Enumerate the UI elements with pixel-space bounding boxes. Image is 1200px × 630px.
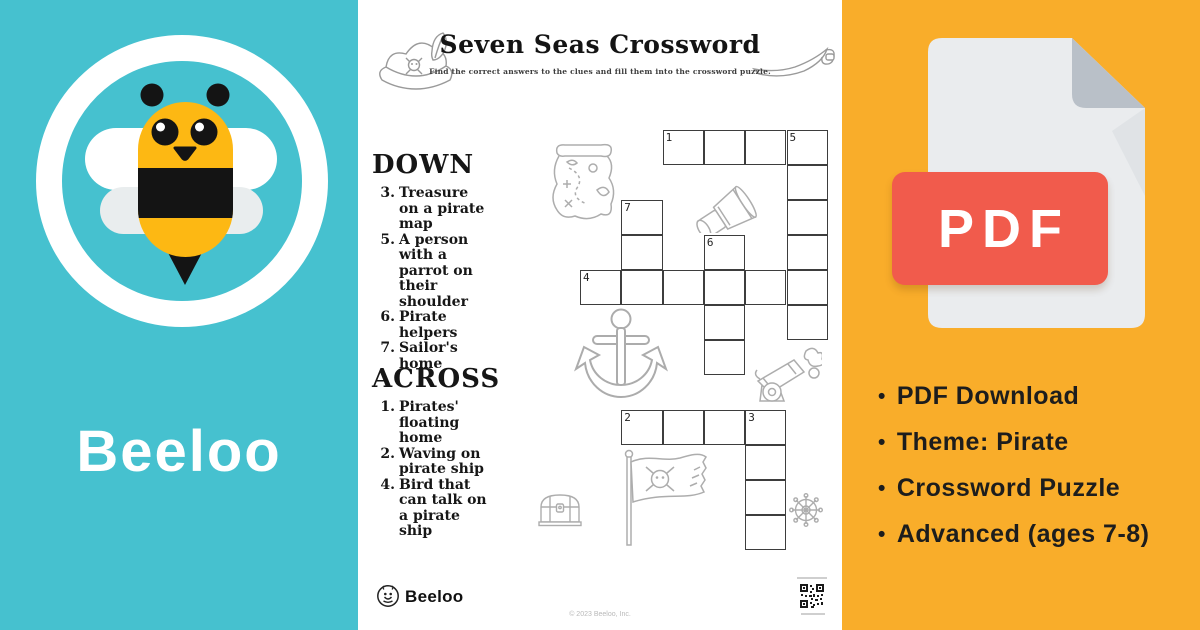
crossword-cell bbox=[745, 270, 786, 305]
feature-item: Crossword Puzzle bbox=[878, 475, 1150, 503]
crossword-cell: 1 bbox=[663, 130, 704, 165]
crossword-cell: 4 bbox=[580, 270, 621, 305]
footer-brand-name: Beeloo bbox=[405, 587, 463, 607]
crossword-cell bbox=[787, 305, 828, 340]
clue-item: 3.Treasure on a pirate map bbox=[399, 186, 511, 233]
brand-panel: Beeloo bbox=[0, 0, 358, 630]
crossword-cell bbox=[745, 130, 786, 165]
worksheet-preview: Seven Seas Crossword Find the correct an… bbox=[358, 0, 842, 630]
treasure-map-icon bbox=[545, 140, 620, 225]
crossword-cell bbox=[663, 410, 704, 445]
crossword-cell bbox=[745, 515, 786, 550]
crossword-cell-number: 5 bbox=[790, 131, 797, 144]
crossword-cell bbox=[621, 235, 662, 270]
feature-item: Advanced (ages 7-8) bbox=[878, 521, 1150, 549]
crossword-cell-number: 7 bbox=[624, 201, 631, 214]
down-clues-section: DOWN 3.Treasure on a pirate map 5.A pers… bbox=[372, 150, 511, 372]
crossword-cell: 3 bbox=[745, 410, 786, 445]
crossword-cell-number: 6 bbox=[707, 236, 714, 249]
pdf-label: PDF bbox=[938, 198, 1070, 260]
crossword-cell bbox=[704, 305, 745, 340]
across-clue-list: 1.Pirates' floating home 2.Waving on pir… bbox=[377, 400, 511, 540]
down-clue-list: 3.Treasure on a pirate map 5.A person wi… bbox=[377, 186, 511, 372]
crossword-cell bbox=[704, 270, 745, 305]
worksheet-subtitle: Find the correct answers to the clues an… bbox=[358, 67, 842, 76]
crossword-cell bbox=[704, 340, 745, 375]
cannon-icon bbox=[748, 345, 822, 405]
qr-caption-top bbox=[797, 577, 827, 579]
qr-caption-bottom bbox=[801, 613, 825, 615]
crossword-cell bbox=[704, 410, 745, 445]
brand-name: Beeloo bbox=[0, 418, 358, 485]
bee-mascot-icon bbox=[80, 75, 290, 285]
crossword-cell bbox=[787, 165, 828, 200]
feature-item: PDF Download bbox=[878, 383, 1150, 411]
clue-item: 4.Bird that can talk on a pirate ship bbox=[399, 478, 511, 540]
crossword-cell-number: 4 bbox=[583, 271, 590, 284]
crossword-cell-number: 2 bbox=[624, 411, 631, 424]
across-heading: ACROSS bbox=[372, 364, 511, 394]
feature-list: PDF Download Theme: Pirate Crossword Puz… bbox=[878, 383, 1150, 567]
worksheet-title: Seven Seas Crossword bbox=[358, 30, 842, 59]
crossword-cell bbox=[704, 130, 745, 165]
crossword-cell: 5 bbox=[787, 130, 828, 165]
crossword-cell bbox=[787, 200, 828, 235]
pdf-badge: PDF bbox=[892, 172, 1108, 285]
clue-item: 1.Pirates' floating home bbox=[399, 400, 511, 447]
crossword-cell bbox=[787, 270, 828, 305]
anchor-icon bbox=[573, 305, 670, 408]
beeloo-logo-icon bbox=[376, 584, 400, 608]
crossword-cell bbox=[787, 235, 828, 270]
crossword-cell-number: 1 bbox=[666, 131, 673, 144]
crossword-cell: 7 bbox=[621, 200, 662, 235]
qr-code-icon bbox=[799, 583, 825, 609]
crossword-cell bbox=[745, 445, 786, 480]
details-panel: PDF PDF Download Theme: Pirate Crossword… bbox=[842, 0, 1200, 630]
crossword-cell bbox=[745, 480, 786, 515]
feature-item: Theme: Pirate bbox=[878, 429, 1150, 457]
clue-item: 6.Pirate helpers bbox=[399, 310, 511, 341]
crossword-cell bbox=[621, 270, 662, 305]
clue-item: 5.A person with a parrot on their should… bbox=[399, 233, 511, 311]
crossword-cell: 6 bbox=[704, 235, 745, 270]
spyglass-icon bbox=[688, 168, 760, 233]
ship-wheel-icon bbox=[788, 493, 824, 527]
crossword-cell: 2 bbox=[621, 410, 662, 445]
down-heading: DOWN bbox=[372, 150, 511, 180]
copyright-text: © 2023 Beeloo, Inc. bbox=[358, 611, 842, 618]
treasure-chest-icon bbox=[538, 492, 582, 528]
pdf-file-icon[interactable]: PDF bbox=[928, 38, 1145, 328]
crossword-cell bbox=[663, 270, 704, 305]
crossword-cell-number: 3 bbox=[748, 411, 755, 424]
across-clues-section: ACROSS 1.Pirates' floating home 2.Waving… bbox=[372, 364, 511, 540]
clue-item: 2.Waving on pirate ship bbox=[399, 447, 511, 478]
pirate-flag-icon bbox=[620, 448, 715, 548]
